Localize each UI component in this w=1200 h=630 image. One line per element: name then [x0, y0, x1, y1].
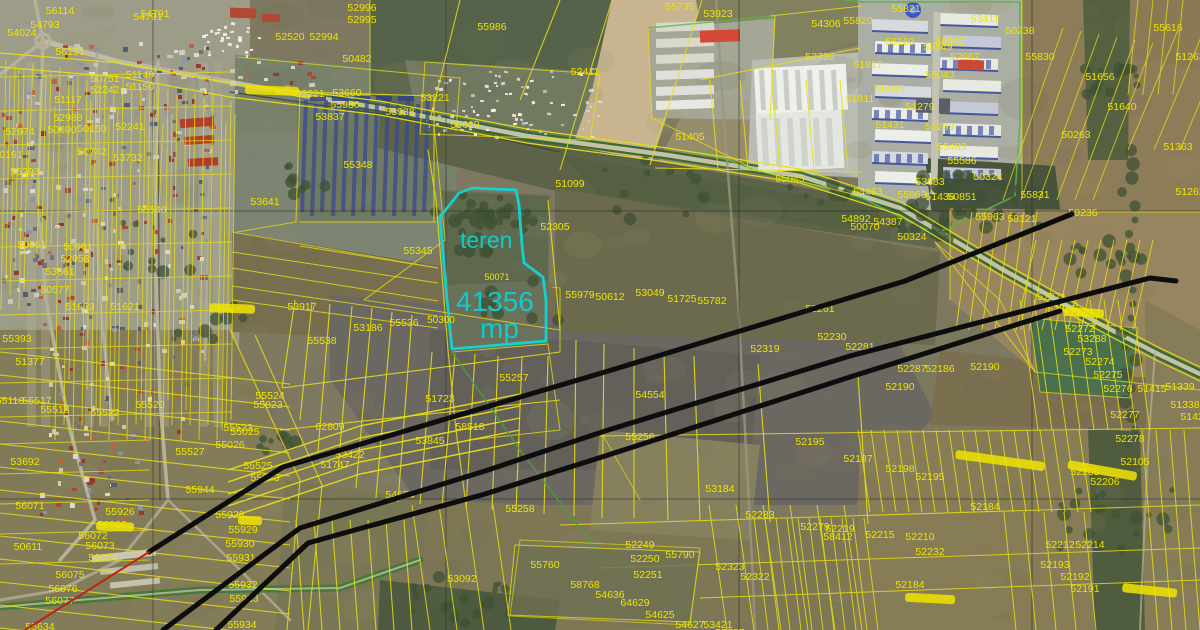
- svg-text:56076: 56076: [48, 583, 77, 595]
- svg-text:52994: 52994: [309, 31, 338, 43]
- svg-text:51363: 51363: [1163, 141, 1192, 153]
- svg-text:52210: 52210: [905, 531, 934, 543]
- svg-text:55619: 55619: [450, 119, 479, 131]
- svg-text:51811: 51811: [846, 93, 875, 105]
- svg-text:53660: 53660: [332, 87, 361, 99]
- svg-text:55522: 55522: [90, 407, 119, 419]
- svg-text:52195: 52195: [795, 436, 824, 448]
- svg-text:50482: 50482: [342, 53, 371, 65]
- svg-text:50611: 50611: [14, 541, 43, 553]
- svg-text:53221: 53221: [420, 92, 449, 104]
- svg-text:53861: 53861: [45, 266, 74, 278]
- svg-text:52287: 52287: [897, 363, 926, 375]
- svg-text:54627: 54627: [675, 619, 704, 630]
- svg-text:55831: 55831: [1020, 189, 1049, 201]
- svg-text:50324: 50324: [897, 231, 926, 243]
- svg-text:51293: 51293: [925, 121, 954, 133]
- svg-text:51723: 51723: [425, 393, 454, 405]
- svg-text:51621: 51621: [110, 301, 139, 313]
- svg-text:50324: 50324: [973, 171, 1002, 183]
- svg-text:53923: 53923: [703, 8, 732, 20]
- svg-text:56114: 56114: [46, 5, 75, 17]
- svg-text:52219: 52219: [825, 523, 854, 535]
- svg-text:52319: 52319: [750, 343, 779, 355]
- svg-text:55538: 55538: [307, 335, 336, 347]
- svg-text:52184: 52184: [970, 501, 999, 513]
- svg-text:53092: 53092: [447, 573, 476, 585]
- svg-text:56191: 56191: [55, 46, 84, 58]
- svg-text:50690: 50690: [47, 124, 76, 136]
- svg-text:55525: 55525: [243, 460, 272, 472]
- svg-text:52322: 52322: [740, 571, 769, 583]
- svg-text:50263: 50263: [1061, 129, 1090, 141]
- svg-text:52241: 52241: [115, 121, 144, 133]
- svg-text:55536: 55536: [389, 317, 418, 329]
- svg-text:51099: 51099: [555, 178, 584, 190]
- svg-text:54306: 54306: [811, 18, 840, 30]
- svg-text:53845: 53845: [415, 435, 444, 447]
- svg-text:52190: 52190: [885, 381, 914, 393]
- svg-text:52305: 52305: [540, 221, 569, 233]
- svg-text:50238: 50238: [1005, 25, 1034, 37]
- svg-text:55520: 55520: [135, 399, 164, 411]
- svg-text:55540: 55540: [137, 204, 166, 216]
- svg-text:55782: 55782: [697, 295, 726, 307]
- svg-text:50150: 50150: [77, 123, 106, 135]
- svg-text:52212: 52212: [1045, 539, 1074, 551]
- svg-text:51656: 51656: [1085, 71, 1114, 83]
- svg-text:52232: 52232: [915, 546, 944, 558]
- svg-text:51653: 51653: [65, 301, 94, 313]
- svg-text:50851: 50851: [947, 191, 976, 203]
- svg-text:55257: 55257: [499, 372, 528, 384]
- svg-text:55963: 55963: [897, 189, 926, 201]
- svg-text:teren: teren: [460, 227, 512, 253]
- svg-text:53692: 53692: [10, 456, 39, 468]
- svg-text:52192: 52192: [1060, 571, 1089, 583]
- svg-text:mp: mp: [480, 313, 519, 344]
- svg-text:53938: 53938: [385, 106, 414, 118]
- svg-text:56075: 56075: [55, 569, 84, 581]
- svg-text:52974: 52974: [5, 126, 34, 138]
- svg-text:55483: 55483: [937, 141, 966, 153]
- svg-text:53186: 53186: [353, 322, 382, 334]
- svg-text:51263: 51263: [1175, 51, 1200, 63]
- svg-text:53837: 53837: [315, 111, 344, 123]
- svg-text:54483: 54483: [853, 186, 882, 198]
- svg-text:51415: 51415: [1137, 383, 1166, 395]
- svg-text:55393: 55393: [10, 166, 39, 178]
- svg-text:55045: 55045: [775, 173, 804, 185]
- svg-text:55118: 55118: [0, 395, 24, 407]
- svg-text:55926: 55926: [105, 506, 134, 518]
- svg-text:52996: 52996: [347, 2, 376, 14]
- svg-text:55634: 55634: [25, 621, 54, 630]
- svg-text:54554: 54554: [635, 389, 664, 401]
- svg-text:52520: 52520: [275, 31, 304, 43]
- svg-text:52191: 52191: [1070, 583, 1099, 595]
- svg-text:53917: 53917: [287, 301, 316, 313]
- svg-text:52272: 52272: [1065, 323, 1094, 335]
- svg-text:50071: 50071: [484, 272, 509, 282]
- svg-text:51640: 51640: [1107, 101, 1136, 113]
- svg-text:55930: 55930: [225, 538, 254, 550]
- svg-text:55823: 55823: [253, 399, 282, 411]
- svg-text:58518: 58518: [455, 421, 484, 433]
- svg-text:55735: 55735: [665, 1, 694, 13]
- svg-text:52274: 52274: [1085, 356, 1114, 368]
- svg-text:54625: 54625: [645, 609, 674, 621]
- svg-text:55616: 55616: [1153, 22, 1182, 34]
- svg-text:52411: 52411: [571, 66, 600, 78]
- svg-text:51431: 51431: [875, 119, 904, 131]
- svg-text:53683: 53683: [915, 176, 944, 188]
- svg-text:52242: 52242: [90, 84, 119, 96]
- svg-text:55963: 55963: [975, 211, 1004, 223]
- svg-text:55258: 55258: [505, 503, 534, 515]
- svg-text:55929: 55929: [228, 524, 257, 536]
- svg-text:55820: 55820: [843, 15, 872, 27]
- svg-text:54791: 54791: [140, 8, 169, 20]
- svg-text:56071: 56071: [15, 500, 44, 512]
- svg-text:52186: 52186: [925, 363, 954, 375]
- svg-text:51747: 51747: [320, 459, 349, 471]
- svg-text:51262: 51262: [1175, 186, 1200, 198]
- svg-text:55944: 55944: [185, 484, 214, 496]
- svg-text:55043: 55043: [925, 69, 954, 81]
- svg-text:51421: 51421: [1180, 411, 1200, 423]
- svg-text:51150: 51150: [126, 81, 155, 93]
- svg-text:53184: 53184: [705, 483, 734, 495]
- svg-text:51149: 51149: [126, 69, 155, 81]
- svg-text:50161: 50161: [0, 149, 23, 161]
- svg-text:52277: 52277: [1110, 409, 1139, 421]
- svg-text:52187: 52187: [843, 453, 872, 465]
- svg-text:52275: 52275: [1093, 369, 1122, 381]
- svg-text:51117: 51117: [54, 94, 82, 106]
- svg-text:55348: 55348: [343, 159, 372, 171]
- svg-text:52105: 52105: [1120, 456, 1149, 468]
- svg-text:50577: 50577: [40, 284, 69, 296]
- svg-text:55025: 55025: [230, 426, 259, 438]
- svg-text:55986: 55986: [477, 21, 506, 33]
- svg-text:50962: 50962: [935, 36, 964, 48]
- svg-text:50061: 50061: [17, 239, 46, 251]
- svg-text:55586: 55586: [947, 155, 976, 167]
- svg-text:50961: 50961: [63, 241, 92, 253]
- svg-text:51279: 51279: [905, 101, 934, 113]
- svg-text:51405: 51405: [675, 131, 704, 143]
- svg-text:56160: 56160: [885, 36, 914, 48]
- svg-text:56073: 56073: [85, 540, 114, 552]
- svg-text:55821: 55821: [891, 3, 920, 15]
- svg-text:52215: 52215: [865, 529, 894, 541]
- svg-text:55830: 55830: [1025, 51, 1054, 63]
- svg-text:55345: 55345: [403, 245, 432, 257]
- svg-text:55979: 55979: [565, 289, 594, 301]
- svg-text:52995: 52995: [347, 14, 376, 26]
- svg-text:53049: 53049: [635, 287, 664, 299]
- svg-text:52195: 52195: [915, 471, 944, 483]
- svg-text:55986: 55986: [330, 99, 359, 111]
- svg-text:55934: 55934: [227, 619, 256, 630]
- svg-text:52184: 52184: [895, 579, 924, 591]
- svg-text:51817: 51817: [853, 59, 882, 71]
- svg-text:50070: 50070: [850, 221, 879, 233]
- svg-text:50300: 50300: [427, 315, 455, 326]
- svg-text:55527: 55527: [175, 446, 204, 458]
- svg-text:53221: 53221: [295, 88, 324, 100]
- svg-text:51338: 51338: [1170, 399, 1199, 411]
- svg-text:52250: 52250: [630, 553, 659, 565]
- svg-text:54024: 54024: [7, 27, 36, 39]
- svg-text:52276: 52276: [1103, 383, 1132, 395]
- svg-text:55393: 55393: [2, 333, 31, 345]
- svg-text:58121: 58121: [1007, 213, 1036, 225]
- svg-text:50612: 50612: [595, 291, 624, 303]
- svg-text:55518: 55518: [40, 404, 69, 416]
- svg-text:51339: 51339: [1165, 381, 1194, 393]
- svg-text:52736: 52736: [805, 51, 834, 63]
- svg-text:62809: 62809: [315, 421, 344, 433]
- svg-text:55760: 55760: [530, 559, 559, 571]
- svg-text:52198: 52198: [885, 463, 914, 475]
- svg-text:52967: 52967: [950, 51, 979, 63]
- svg-text:51725: 51725: [667, 293, 696, 305]
- svg-text:53411: 53411: [971, 13, 1000, 25]
- svg-text:52958: 52958: [60, 253, 89, 265]
- svg-text:53732: 53732: [113, 152, 142, 164]
- svg-text:56074: 56074: [88, 552, 117, 564]
- svg-text:52214: 52214: [1075, 539, 1104, 551]
- svg-text:52230: 52230: [817, 331, 846, 343]
- svg-text:52190: 52190: [970, 361, 999, 373]
- svg-text:52206: 52206: [1090, 476, 1119, 488]
- svg-text:53641: 53641: [250, 196, 279, 208]
- svg-text:55790: 55790: [665, 549, 694, 561]
- svg-text:55026: 55026: [215, 439, 244, 451]
- svg-text:52249: 52249: [625, 539, 654, 551]
- svg-text:52283: 52283: [745, 509, 774, 521]
- svg-text:53421: 53421: [703, 619, 732, 630]
- svg-text:55045: 55045: [875, 83, 904, 95]
- svg-text:52278: 52278: [1115, 433, 1144, 445]
- svg-text:64629: 64629: [620, 597, 649, 609]
- svg-text:50742: 50742: [77, 146, 106, 158]
- svg-text:51377: 51377: [15, 356, 44, 368]
- svg-text:52193: 52193: [1040, 559, 1069, 571]
- svg-text:52251: 52251: [633, 569, 662, 581]
